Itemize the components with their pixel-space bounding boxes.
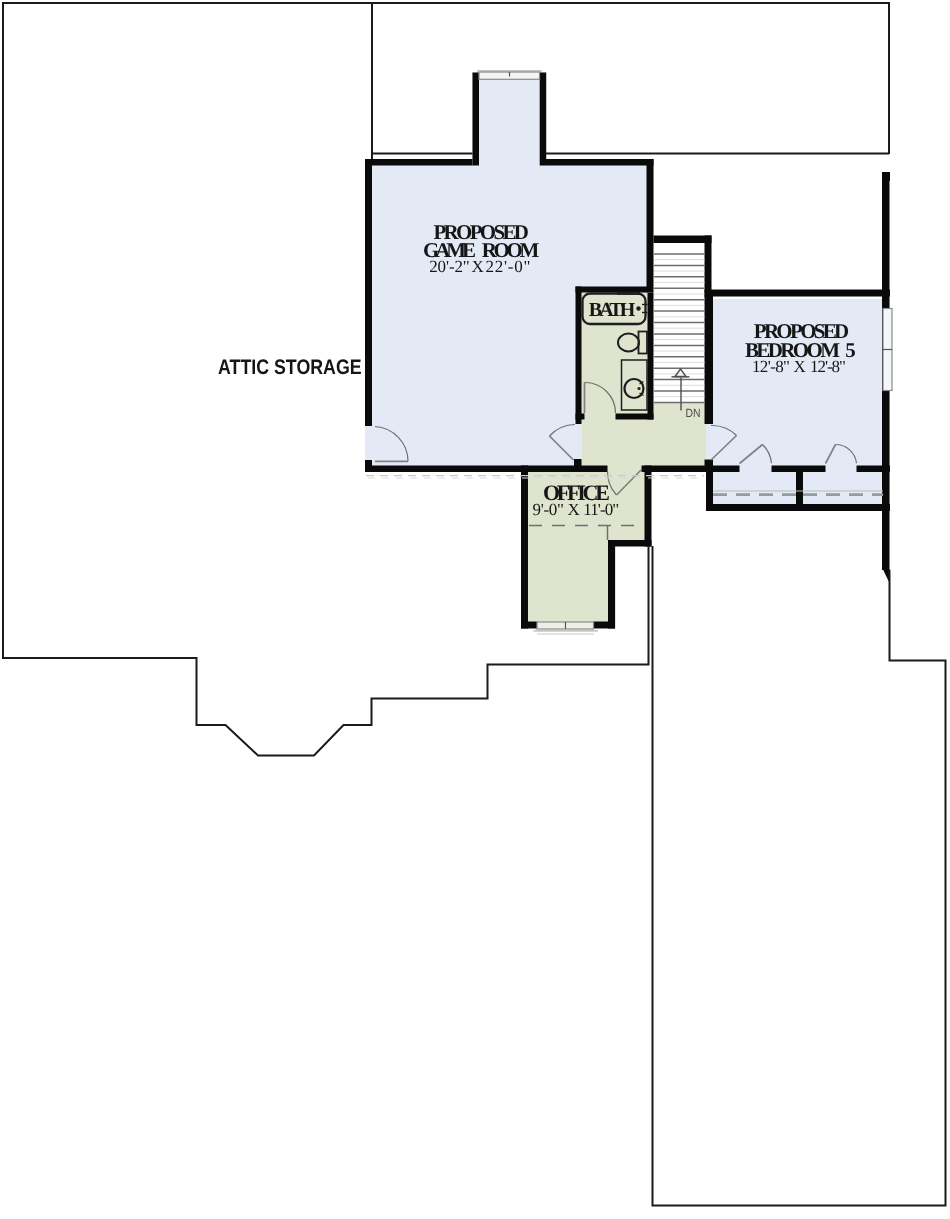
svg-text:X: X <box>793 357 805 376</box>
svg-text:DN: DN <box>686 406 701 420</box>
svg-text:20'-2": 20'-2" <box>429 257 470 276</box>
svg-text:5: 5 <box>845 338 856 362</box>
svg-text:ATTIC STORAGE: ATTIC STORAGE <box>218 356 362 379</box>
svg-text:9'-0": 9'-0" <box>533 500 564 519</box>
svg-text:12'-8": 12'-8" <box>752 357 790 376</box>
svg-text:X: X <box>567 500 579 519</box>
svg-text:BATH: BATH <box>589 299 636 321</box>
svg-text:X: X <box>471 257 483 276</box>
svg-text:22'-0": 22'-0" <box>486 257 531 276</box>
svg-text:11'-0": 11'-0" <box>583 500 619 519</box>
svg-text:12'-8": 12'-8" <box>810 357 846 376</box>
